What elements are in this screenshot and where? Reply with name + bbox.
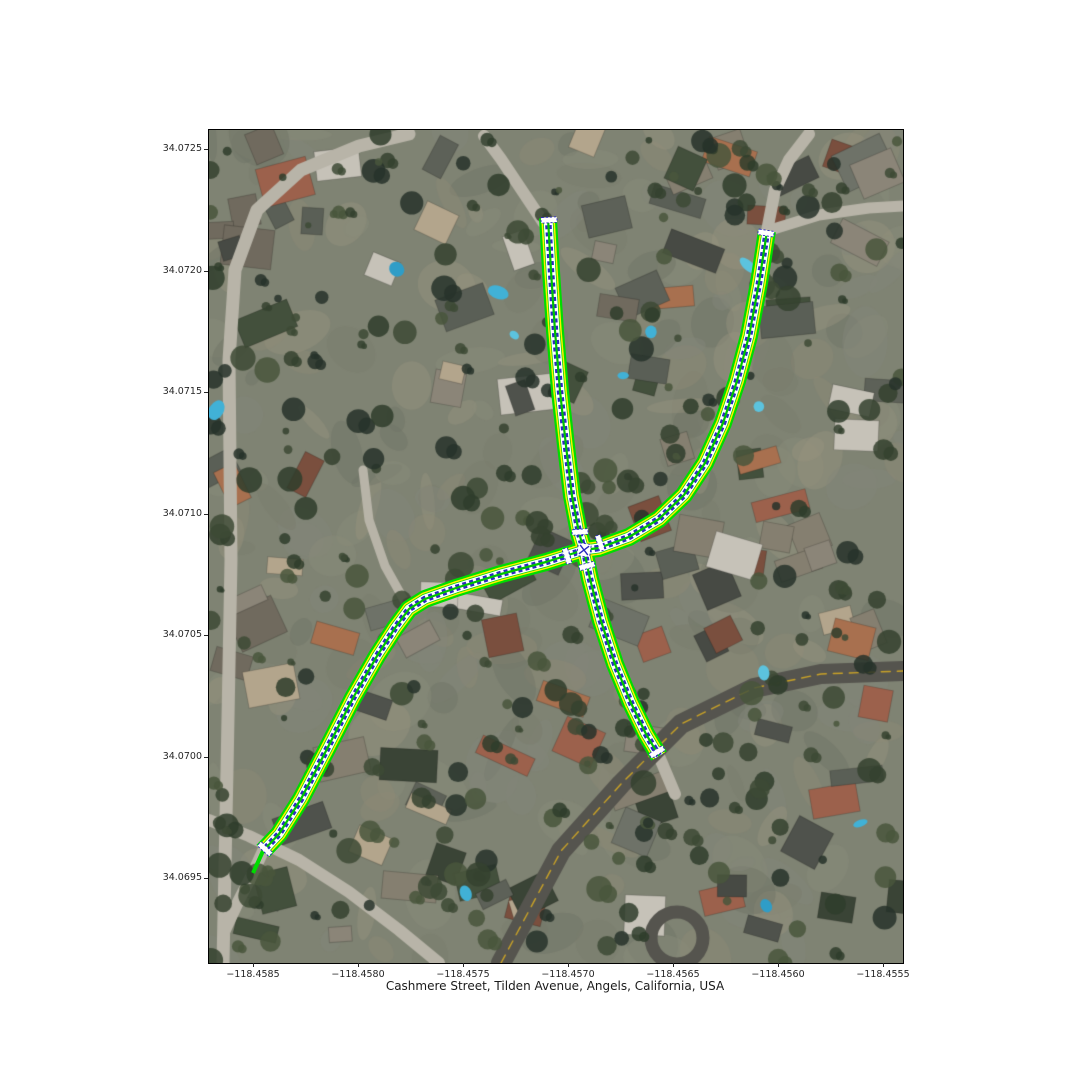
y-tick-mark — [204, 757, 208, 758]
matplotlib-figure: 34.072534.072034.071534.071034.070534.07… — [0, 0, 1086, 1080]
y-tick-label: 34.0695 — [118, 872, 202, 884]
y-tick-label: 34.0700 — [118, 751, 202, 763]
x-tick-mark — [253, 963, 254, 967]
x-tick-mark — [463, 963, 464, 967]
y-tick-mark — [204, 514, 208, 515]
x-tick-mark — [883, 963, 884, 967]
figure-title: Cashmere Street, Tilden Avenue, Angels, … — [208, 979, 902, 994]
y-tick-label: 34.0725 — [118, 143, 202, 155]
x-tick-mark — [673, 963, 674, 967]
y-tick-mark — [204, 635, 208, 636]
y-tick-mark — [204, 149, 208, 150]
y-tick-mark — [204, 392, 208, 393]
y-tick-label: 34.0705 — [118, 629, 202, 641]
y-tick-label: 34.0715 — [118, 386, 202, 398]
x-tick-mark — [358, 963, 359, 967]
y-tick-label: 34.0720 — [118, 265, 202, 277]
x-tick-mark — [568, 963, 569, 967]
y-tick-label: 34.0710 — [118, 508, 202, 520]
map-axes — [208, 129, 904, 964]
y-tick-mark — [204, 271, 208, 272]
x-tick-mark — [778, 963, 779, 967]
satellite-basemap — [209, 130, 903, 963]
y-tick-mark — [204, 878, 208, 879]
